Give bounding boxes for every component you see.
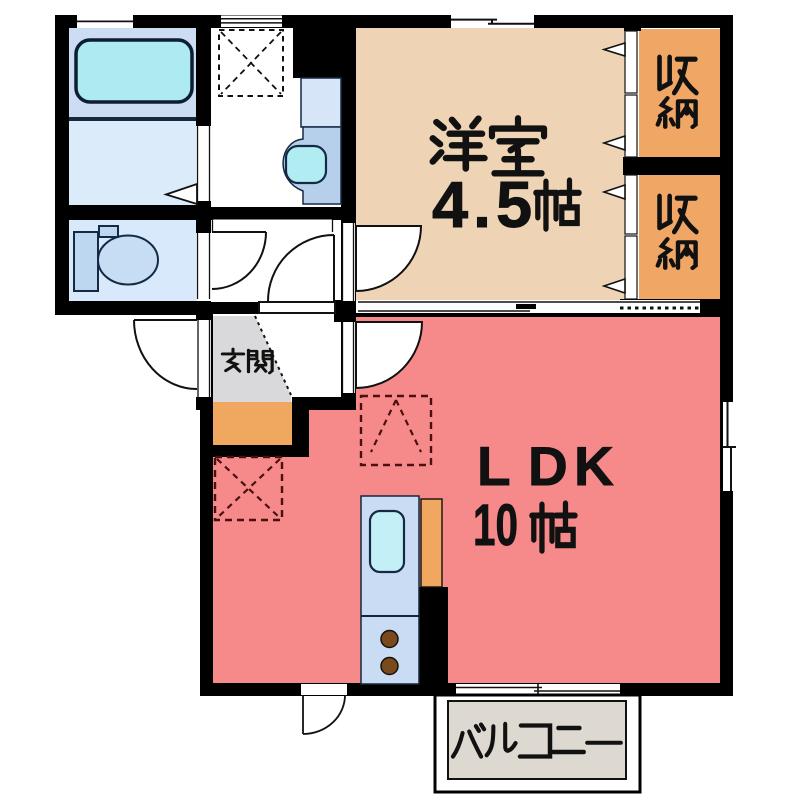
svg-text:L: L bbox=[477, 435, 511, 497]
svg-text:4: 4 bbox=[432, 168, 468, 241]
svg-text:D: D bbox=[528, 435, 568, 497]
svg-text:.: . bbox=[473, 168, 491, 241]
svg-text:5: 5 bbox=[496, 168, 532, 241]
svg-text:10: 10 bbox=[473, 493, 518, 558]
svg-text:K: K bbox=[574, 435, 614, 497]
